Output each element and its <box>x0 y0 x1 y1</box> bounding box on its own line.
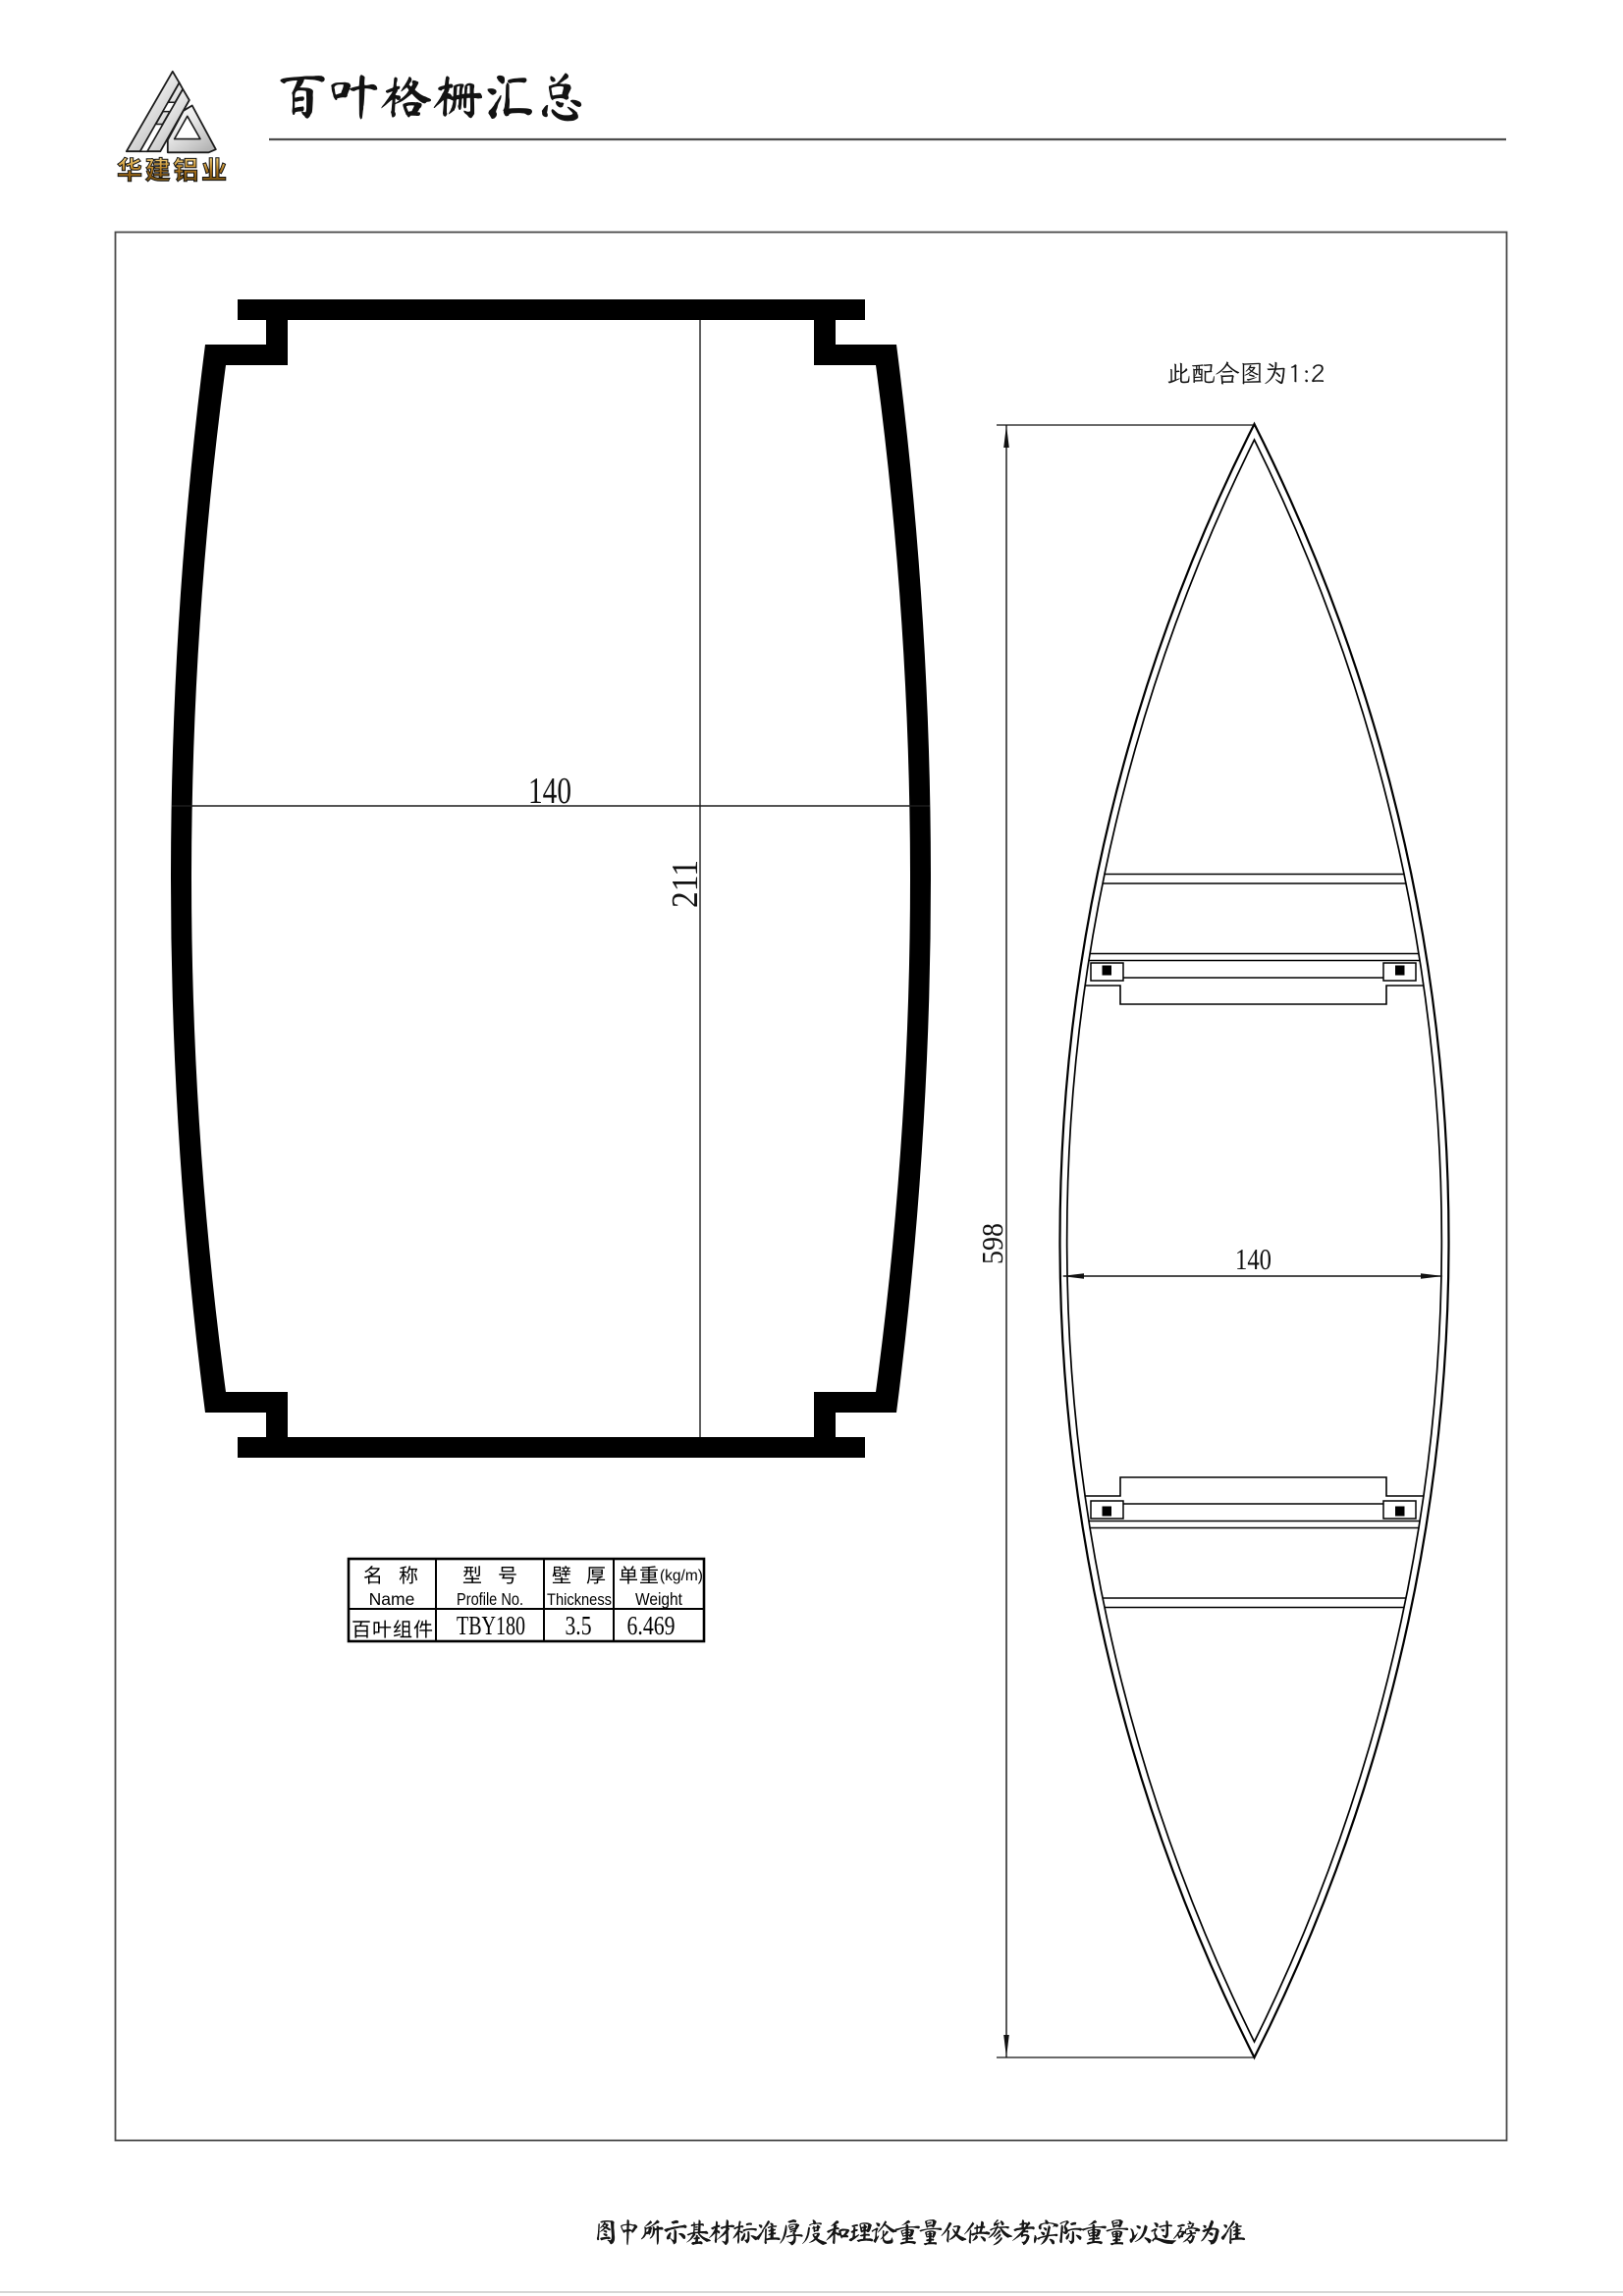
svg-text:Thickness: Thickness <box>547 1591 612 1609</box>
svg-text:598: 598 <box>975 1223 1009 1264</box>
svg-text:Weight: Weight <box>635 1589 682 1609</box>
svg-text:Profile No.: Profile No. <box>457 1589 523 1609</box>
svg-text:TBY180: TBY180 <box>457 1611 525 1640</box>
svg-text:(kg/m): (kg/m) <box>660 1568 703 1584</box>
svg-text:Name: Name <box>369 1589 415 1609</box>
svg-text:140: 140 <box>1235 1242 1271 1276</box>
svg-text:6.469: 6.469 <box>627 1611 676 1640</box>
svg-text:140: 140 <box>528 771 571 812</box>
svg-text:3.5: 3.5 <box>566 1611 592 1640</box>
svg-text:211: 211 <box>665 860 706 908</box>
